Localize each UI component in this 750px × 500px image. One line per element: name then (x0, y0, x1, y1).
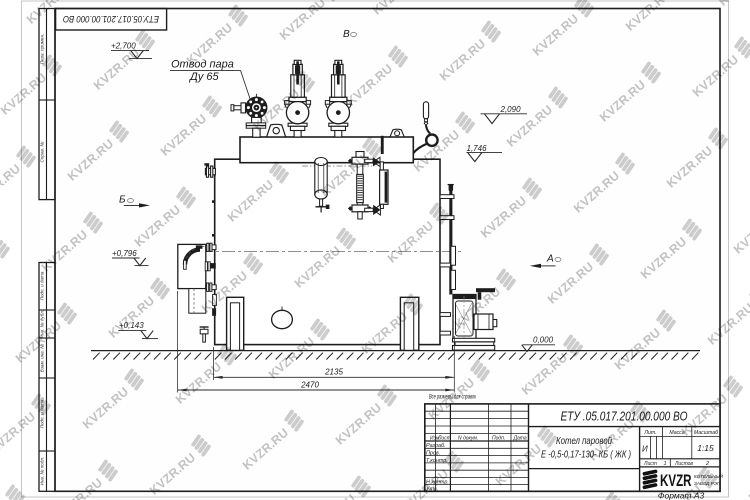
svg-text:1:15: 1:15 (697, 443, 714, 453)
svg-text:2470: 2470 (300, 380, 319, 389)
svg-text:KVZR: KVZR (660, 472, 692, 490)
svg-text:ЕТУ.05.017.201.00.000 ВО: ЕТУ.05.017.201.00.000 ВО (63, 14, 159, 24)
svg-text:Лист: Лист (643, 461, 657, 467)
svg-text:Отвод пара: Отвод пара (171, 59, 234, 71)
svg-text:+0,796: +0,796 (112, 249, 137, 258)
svg-text:Подп. и дата: Подп. и дата (40, 271, 45, 300)
svg-text:Лит.: Лит. (643, 430, 656, 436)
svg-text:Листов: Листов (674, 461, 693, 467)
svg-text:Е -0,5-0,17-130- КБ ( ЖК ): Е -0,5-0,17-130- КБ ( ЖК ) (541, 450, 631, 461)
svg-text:Масштаб: Масштаб (694, 430, 719, 436)
svg-text:Справ. №: Справ. № (40, 142, 45, 163)
svg-text:0,000: 0,000 (533, 335, 554, 344)
svg-text:2,090: 2,090 (500, 105, 522, 114)
svg-text:Перв. примен.: Перв. примен. (40, 34, 45, 65)
svg-text:А: А (546, 254, 554, 265)
svg-text:Инв. № подл.: Инв. № подл. (40, 457, 45, 486)
svg-text:1: 1 (664, 461, 667, 467)
svg-text:2: 2 (705, 461, 709, 467)
svg-text:И: И (642, 445, 648, 454)
svg-text:2135: 2135 (324, 368, 343, 377)
svg-text:В: В (343, 29, 350, 40)
svg-text:1,746: 1,746 (467, 144, 488, 153)
svg-text:Разраб.: Разраб. (426, 443, 446, 449)
svg-text:Ду 65: Ду 65 (188, 71, 220, 83)
svg-text:Пров.: Пров. (426, 451, 440, 457)
svg-text:Б: Б (119, 195, 126, 206)
